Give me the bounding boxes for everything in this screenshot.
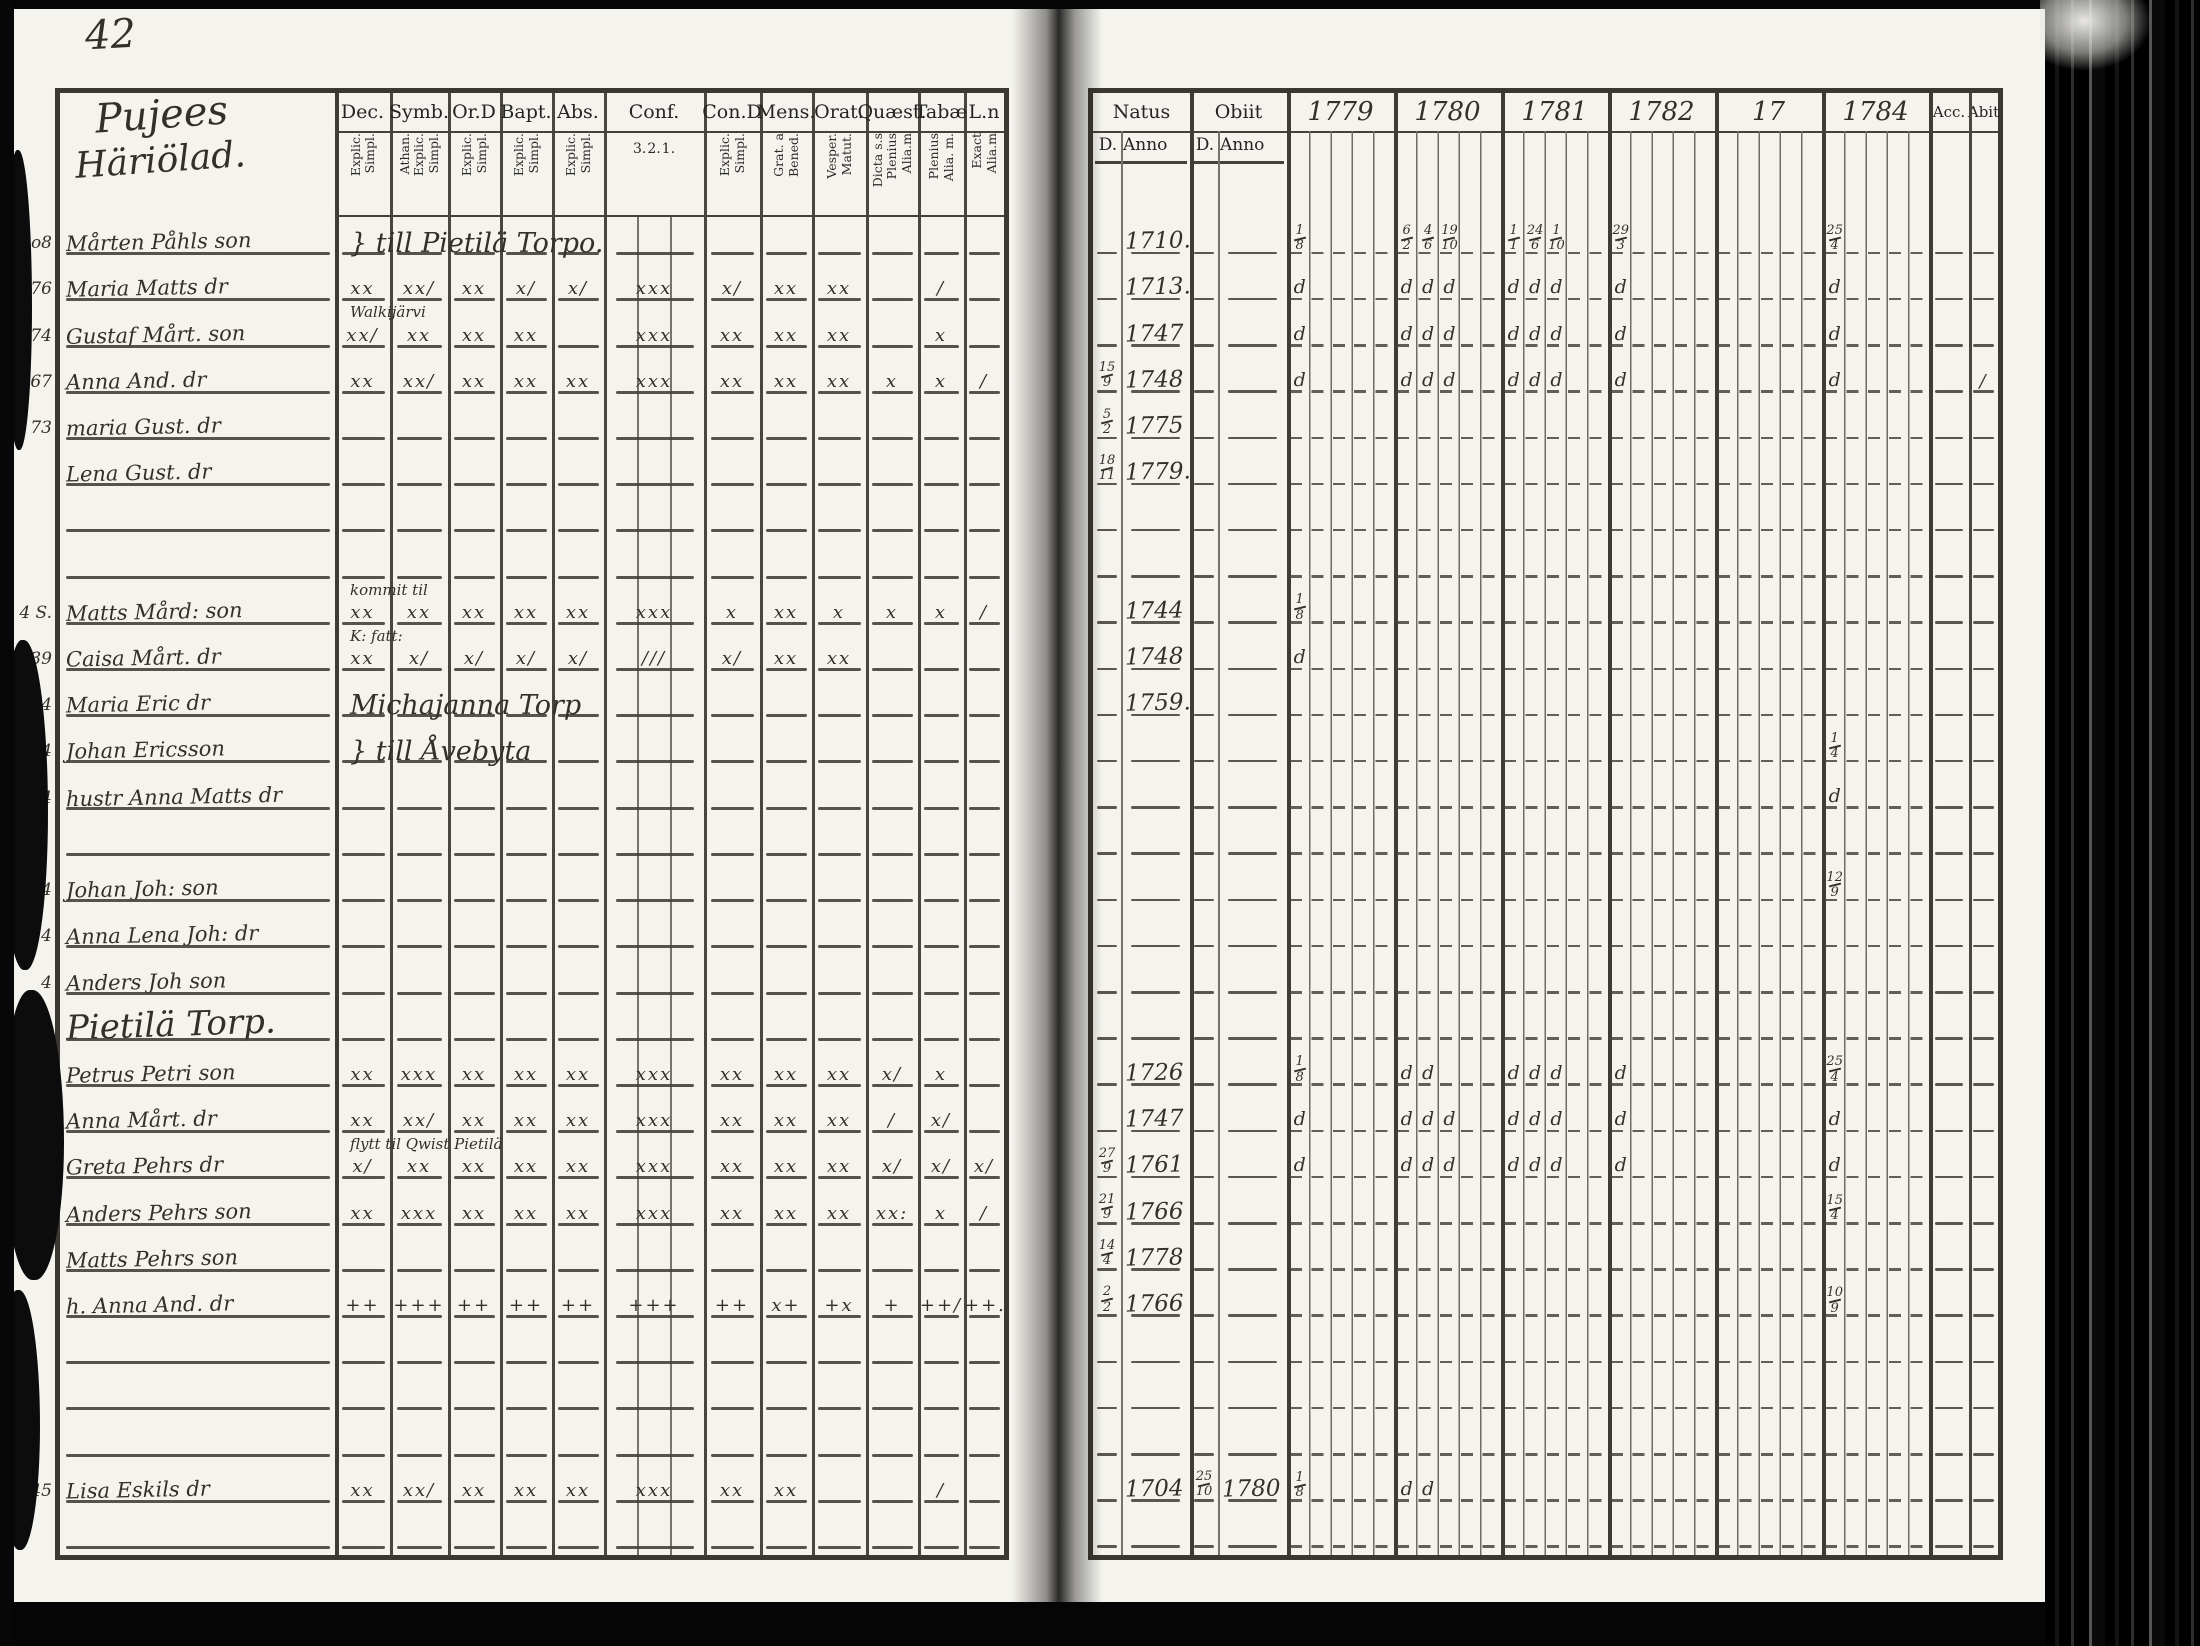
communion-mark: xxx [604, 325, 704, 346]
acc-cell [1929, 215, 1969, 261]
abit-cell [1969, 1324, 1998, 1370]
mark-cell [964, 446, 1004, 492]
d-mark: d [1439, 1154, 1460, 1176]
year-marks-cell [1287, 1001, 1394, 1047]
name-cell: Anders Joh son [60, 954, 335, 1000]
mark-cell: xx/ [390, 261, 448, 307]
communion-mark: xx [552, 371, 604, 392]
table-row: 45Lisa Eskils drxxxx/xxxxxxxxxxxxx/ [60, 1463, 1004, 1509]
person-name: Anders Pehrs son [66, 1199, 252, 1227]
person-name: Matts Pehrs son [66, 1245, 238, 1273]
fraction: 18 [1294, 594, 1306, 621]
communion-mark: xx [760, 1064, 812, 1085]
communion-mark: / [866, 1110, 918, 1131]
mark-cell [760, 492, 812, 538]
natus-year: 1747 [1125, 320, 1184, 347]
mark-cell: xx [552, 585, 604, 631]
abit-cell [1969, 631, 1998, 677]
fraction-mark: 293 [1610, 219, 1631, 252]
communion-mark: xxx [604, 1480, 704, 1501]
natus-anno-cell: 1775 [1121, 400, 1190, 446]
communion-mark: xx [500, 1480, 552, 1501]
mark-cell: xx: [866, 1185, 918, 1231]
year-marks-cell [1715, 1278, 1822, 1324]
mark-cell: x [704, 585, 760, 631]
subheader-label: Matut. [840, 133, 853, 175]
year-marks-cell [1287, 769, 1394, 815]
year-header-17: 17 [1715, 93, 1822, 133]
year-marks-cell: d [1608, 1047, 1715, 1093]
communion-mark: xx [704, 1156, 760, 1177]
mark-cell [964, 631, 1004, 677]
year-marks-cell: dd [1394, 1047, 1501, 1093]
mark-cell: ++ [448, 1278, 500, 1324]
name-cell: Greta Pehrs dr [60, 1139, 335, 1185]
mark-cell [704, 769, 760, 815]
mark-cell [704, 1001, 760, 1047]
year-marks-cell [1608, 538, 1715, 584]
mark-cell [552, 908, 604, 954]
mark-cell: xx [448, 307, 500, 353]
communion-mark: xx [448, 1156, 500, 1177]
natus-year: 1710. [1125, 228, 1191, 255]
mark-cell: xxx [390, 1185, 448, 1231]
year-marks-cell [1608, 954, 1715, 1000]
person-name: Anders Joh son [66, 968, 227, 995]
row-annotation: flytt til Qwist Pietilä [350, 1135, 502, 1153]
acc-cell [1929, 1232, 1969, 1278]
mark-cell [964, 538, 1004, 584]
year-marks-cell [1822, 446, 1929, 492]
year-marks-cell [1608, 908, 1715, 954]
mark-cell [604, 400, 704, 446]
natus-anno-cell: 1726 [1121, 1047, 1190, 1093]
year-marks-cell [1608, 446, 1715, 492]
d-mark: d [1610, 369, 1631, 391]
mark-cell [866, 400, 918, 446]
mark-cell: xx [704, 354, 760, 400]
mark-cell [760, 538, 812, 584]
obiit-day-cell [1190, 723, 1218, 769]
mark-cell [500, 954, 552, 1000]
column-header-conf: Conf. [604, 93, 704, 133]
mark-cell [918, 492, 964, 538]
natus-year: 1748 [1125, 643, 1184, 670]
communion-mark: xxx [604, 1156, 704, 1177]
subheader-label: Vesper. [825, 133, 838, 179]
communion-mark: / [964, 1203, 1004, 1224]
fraction: 18 [1294, 1056, 1306, 1083]
year-marks-cell: d [1608, 354, 1715, 400]
year-marks-cell [1394, 492, 1501, 538]
row-annotation: } till Pietilä Torpo. [350, 228, 603, 259]
mark-cell [335, 816, 390, 862]
mark-cell [335, 1416, 390, 1462]
obiit-day-cell [1190, 354, 1218, 400]
communion-mark: xx [500, 371, 552, 392]
natus-anno-cell: 1761 [1121, 1139, 1190, 1185]
d-mark: d [1289, 369, 1310, 391]
mark-cell [918, 1509, 964, 1555]
year-marks-cell [1501, 538, 1608, 584]
year-marks-cell: d [1608, 1139, 1715, 1185]
row-annotation: } till Åvebyta [350, 736, 531, 767]
d-mark: d [1417, 1478, 1438, 1500]
d-mark: d [1546, 1108, 1567, 1130]
year-marks-cell: 254 [1822, 1047, 1929, 1093]
year-marks-cell [1608, 862, 1715, 908]
communion-mark: x/ [390, 648, 448, 669]
communion-mark: xx [448, 1064, 500, 1085]
mark-cell [604, 677, 704, 723]
year-marks-cell [1287, 1324, 1394, 1370]
mark-cell: xx [760, 261, 812, 307]
mark-cell [552, 723, 604, 769]
name-cell: Matts Mård: son [60, 585, 335, 631]
mark-cell [760, 1370, 812, 1416]
table-row: 221766109 [1093, 1278, 1998, 1324]
mark-cell: ++. [964, 1278, 1004, 1324]
communion-mark: xx [335, 1064, 390, 1085]
mark-cell: xxx [604, 307, 704, 353]
communion-mark: ++/ [918, 1295, 964, 1316]
mark-cell [704, 816, 760, 862]
natus-anno-cell [1121, 954, 1190, 1000]
mark-cell [964, 215, 1004, 261]
year-marks-cell [1287, 1370, 1394, 1416]
mark-cell: x/ [918, 1093, 964, 1139]
acc-cell [1929, 908, 1969, 954]
abit-cell [1969, 677, 1998, 723]
mark-cell [866, 492, 918, 538]
d-mark: d [1824, 1154, 1845, 1176]
mark-cell [760, 677, 812, 723]
communion-mark: xx [760, 278, 812, 299]
obiit-day-cell [1190, 631, 1218, 677]
subheader-label: 3. [633, 133, 646, 160]
mark-cell [704, 723, 760, 769]
mark-cell [812, 677, 866, 723]
year-marks-cell [1715, 1416, 1822, 1462]
acc-cell [1929, 585, 1969, 631]
mark-cell [390, 908, 448, 954]
natus-year: 1713. [1125, 274, 1191, 301]
fraction: 18 [1294, 1472, 1306, 1499]
abit-cell [1969, 446, 1998, 492]
year-marks-cell: ddd [1394, 1093, 1501, 1139]
year-marks-cell [1287, 816, 1394, 862]
year-marks-cell: 18 [1287, 585, 1394, 631]
name-cell: Anna Mårt. dr [60, 1093, 335, 1139]
subheader-label: Simpl. [427, 133, 440, 173]
mark-cell [964, 1001, 1004, 1047]
mark-cell [964, 1324, 1004, 1370]
year-marks-cell [1715, 1324, 1822, 1370]
natus-year: 1747 [1125, 1106, 1184, 1133]
mark-cell [552, 816, 604, 862]
person-name: Petrus Petri son [66, 1060, 236, 1088]
mark-cell [964, 908, 1004, 954]
mark-cell: xx [704, 1139, 760, 1185]
year-marks-cell: ddd [1501, 1047, 1608, 1093]
communion-mark: xxx [604, 371, 704, 392]
mark-cell [964, 862, 1004, 908]
year-marks-cell [1394, 1416, 1501, 1462]
d-mark: d [1546, 323, 1567, 345]
fraction-mark: 254 [1824, 219, 1845, 252]
person-name: Maria Eric dr [66, 691, 210, 718]
d-mark: d [1417, 323, 1438, 345]
mark-cell [448, 954, 500, 1000]
mark-cell [604, 1370, 704, 1416]
column-subheader: Explic.Simpl. [552, 133, 604, 217]
fraction-mark: 254 [1824, 1050, 1845, 1083]
mark-cell: xxx [604, 1093, 704, 1139]
mark-cell [964, 1370, 1004, 1416]
mark-cell [335, 908, 390, 954]
d-mark: d [1824, 369, 1845, 391]
year-marks-cell [1715, 585, 1822, 631]
acc-cell [1929, 677, 1969, 723]
mark-cell [866, 1001, 918, 1047]
mark-cell [866, 862, 918, 908]
fraction-mark: 129 [1824, 866, 1845, 899]
year-marks-cell [1608, 816, 1715, 862]
mark-cell [704, 908, 760, 954]
fraction: 46 [1422, 225, 1434, 252]
communion-mark: xx [760, 648, 812, 669]
year-marks-cell [1715, 1139, 1822, 1185]
mark-cell [866, 1463, 918, 1509]
mark-cell [760, 1232, 812, 1278]
mark-cell [866, 215, 918, 261]
subheader-label: 1. [662, 133, 675, 160]
mark-cell [604, 723, 704, 769]
communion-mark: xx [335, 1480, 390, 1501]
person-name: Maria Matts dr [66, 275, 228, 302]
mark-cell [704, 862, 760, 908]
column-header-tab: Tabæ [918, 93, 964, 133]
mark-cell: ++ [500, 1278, 552, 1324]
acc-cell [1929, 1185, 1969, 1231]
mark-cell [704, 1324, 760, 1370]
obiit-day-cell [1190, 1416, 1218, 1462]
abit-cell [1969, 261, 1998, 307]
mark-cell [704, 538, 760, 584]
obiit-day-cell: 2510 [1190, 1463, 1218, 1509]
table-row [1093, 1370, 1998, 1416]
fraction-mark: 18 [1289, 219, 1310, 252]
mark-cell [866, 538, 918, 584]
communion-mark: xx [760, 1156, 812, 1177]
subheader-label: Simpl. [363, 133, 376, 173]
mark-cell [552, 446, 604, 492]
table-row: Greta Pehrs drx/xxxxxxxxxxxxxxxxxx/x/x/f… [60, 1139, 1004, 1185]
mark-cell [866, 261, 918, 307]
d-mark: d [1610, 323, 1631, 345]
table-row: 1747ddddddddd [1093, 1093, 1998, 1139]
mark-cell [552, 492, 604, 538]
mark-cell: xx/ [390, 1093, 448, 1139]
year-marks-cell [1287, 1278, 1394, 1324]
communion-mark: x/ [500, 648, 552, 669]
year-marks-cell [1715, 769, 1822, 815]
abit-cell [1969, 1416, 1998, 1462]
obiit-day-cell [1190, 1001, 1218, 1047]
communion-mark: xx [390, 1156, 448, 1177]
obiit-anno-cell: 1780 [1218, 1463, 1287, 1509]
subheader-label: Simpl. [733, 133, 746, 173]
abit-cell [1969, 1278, 1998, 1324]
mark-cell [552, 538, 604, 584]
obiit-day-subheader: D. [1192, 135, 1218, 164]
obiit-day-cell [1190, 1324, 1218, 1370]
acc-cell [1929, 723, 1969, 769]
natus-year: 1704 [1125, 1475, 1184, 1502]
communion-mark: ++. [964, 1295, 1004, 1316]
table-row: 1441778 [1093, 1232, 1998, 1278]
communion-mark: xx [812, 648, 866, 669]
scan-edge-top [0, 0, 2200, 9]
acc-cell [1929, 1509, 1969, 1555]
obiit-day-cell [1190, 1232, 1218, 1278]
mark-cell [448, 1001, 500, 1047]
year-marks-cell [1608, 1324, 1715, 1370]
mark-cell: +++ [604, 1278, 704, 1324]
year-marks-cell: d [1608, 307, 1715, 353]
table-row [1093, 816, 1998, 862]
communion-mark: xx [335, 648, 390, 669]
name-cell: Pietilä Torp. [60, 1001, 335, 1047]
mark-cell: x [918, 585, 964, 631]
acc-cell [1929, 1416, 1969, 1462]
name-cell: Petrus Petri son [60, 1047, 335, 1093]
mark-cell [760, 769, 812, 815]
year-marks-cell: 11246110 [1501, 215, 1608, 261]
year-marks-cell [1715, 1185, 1822, 1231]
fraction-mark: 1910 [1439, 219, 1460, 252]
communion-mark: xx [500, 602, 552, 623]
abit-cell [1969, 538, 1998, 584]
table-row [1093, 538, 1998, 584]
acc-cell [1929, 1463, 1969, 1509]
year-marks-cell: 293 [1608, 215, 1715, 261]
person-name: Lisa Eskils dr [66, 1476, 210, 1503]
obiit-anno-cell [1218, 261, 1287, 307]
communion-mark: xx [760, 371, 812, 392]
year-marks-cell [1501, 769, 1608, 815]
mark-cell [866, 954, 918, 1000]
communion-mark: xx/ [390, 371, 448, 392]
table-row: 129 [1093, 862, 1998, 908]
table-row: Lo8Mårten Påhls son} till Pietilä Torpo. [60, 215, 1004, 261]
name-cell: hustr Anna Matts dr [60, 769, 335, 815]
mark-cell [500, 1416, 552, 1462]
column-subheader: Vesper.Matut. [812, 133, 866, 217]
mark-cell: xx [812, 307, 866, 353]
mark-cell [918, 446, 964, 492]
mark-cell [448, 816, 500, 862]
year-marks-cell [1715, 538, 1822, 584]
mark-cell: xx [812, 354, 866, 400]
subheader-label: Explic. [512, 133, 525, 176]
fraction-mark: 18 [1289, 588, 1310, 621]
communion-mark: xx [448, 1110, 500, 1131]
d-mark: d [1824, 785, 1845, 807]
mark-cell: x [918, 1047, 964, 1093]
mark-cell [866, 1232, 918, 1278]
communion-mark: xx [335, 371, 390, 392]
communion-mark: xx: [866, 1203, 918, 1224]
mark-cell [500, 1509, 552, 1555]
obiit-anno-cell [1218, 1416, 1287, 1462]
d-mark: d [1503, 1108, 1524, 1130]
year-marks-cell [1822, 492, 1929, 538]
year-marks-cell [1608, 677, 1715, 723]
year-marks-cell [1715, 1463, 1822, 1509]
mark-cell [448, 862, 500, 908]
communion-mark: x [704, 602, 760, 623]
mark-cell: xx [552, 1139, 604, 1185]
mark-cell [964, 1047, 1004, 1093]
year-marks-cell [1715, 677, 1822, 723]
acc-cell [1929, 1139, 1969, 1185]
mark-cell [760, 215, 812, 261]
obiit-anno-cell [1218, 1001, 1287, 1047]
d-mark: d [1524, 369, 1545, 391]
mark-cell [812, 769, 866, 815]
abit-cell [1969, 1093, 1998, 1139]
d-mark: d [1417, 276, 1438, 298]
column-subheader: ExactAlia.m [964, 133, 1004, 217]
year-marks-cell [1394, 1278, 1501, 1324]
subheader-label: Simpl. [527, 133, 540, 173]
year-marks-cell [1394, 816, 1501, 862]
fraction: 254 [1826, 1056, 1843, 1083]
mark-cell [964, 1416, 1004, 1462]
year-marks-cell [1501, 1001, 1608, 1047]
mark-cell [552, 954, 604, 1000]
mark-cell: xx [335, 1093, 390, 1139]
mark-cell [704, 1232, 760, 1278]
mark-cell: xx [448, 354, 500, 400]
mark-cell: x/ [918, 1139, 964, 1185]
subheader-label: Dicta s.s [871, 133, 884, 187]
obiit-anno-cell [1218, 1370, 1287, 1416]
natus-anno-cell: 1779. [1121, 446, 1190, 492]
column-subheader: Athan.Explic.Simpl. [390, 133, 448, 217]
mark-cell [552, 1509, 604, 1555]
mark-cell: xx [760, 1093, 812, 1139]
communion-mark: xx [704, 325, 760, 346]
acc-cell [1929, 261, 1969, 307]
mark-cell: ++ [552, 1278, 604, 1324]
abit-cell [1969, 1047, 1998, 1093]
year-marks-cell [1394, 908, 1501, 954]
mark-cell: x [918, 1185, 964, 1231]
year-marks-cell: d [1287, 631, 1394, 677]
communion-mark: ++ [335, 1295, 390, 1316]
year-marks-cell [1501, 1185, 1608, 1231]
year-marks-cell [1715, 1001, 1822, 1047]
table-row: 1591748ddddddddd/ [1093, 354, 1998, 400]
acc-cell [1929, 492, 1969, 538]
communion-mark: xx [500, 325, 552, 346]
acc-cell [1929, 1093, 1969, 1139]
obiit-day-cell [1190, 400, 1218, 446]
mark-cell [760, 908, 812, 954]
mark-cell: xx [760, 307, 812, 353]
